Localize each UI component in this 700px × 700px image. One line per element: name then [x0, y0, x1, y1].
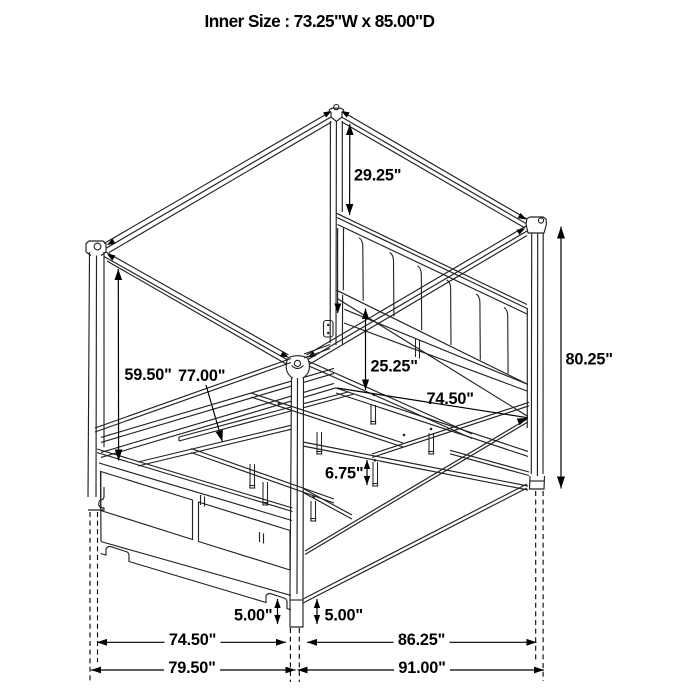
svg-text:Inner Size : 73.25"W x 85.00"D: Inner Size : 73.25"W x 85.00"D	[204, 11, 434, 31]
svg-text:29.25": 29.25"	[354, 167, 401, 185]
svg-text:6.75": 6.75"	[325, 465, 363, 483]
svg-text:5.00": 5.00"	[325, 607, 363, 625]
svg-text:80.25": 80.25"	[566, 351, 613, 369]
svg-text:79.50": 79.50"	[168, 659, 215, 677]
svg-text:91.00": 91.00"	[398, 659, 445, 677]
svg-text:59.50": 59.50"	[124, 366, 171, 384]
svg-text:77.00": 77.00"	[178, 367, 225, 385]
svg-text:74.50": 74.50"	[169, 631, 216, 649]
svg-text:25.25": 25.25"	[371, 358, 418, 376]
svg-text:74.50": 74.50"	[427, 390, 474, 408]
svg-text:86.25": 86.25"	[398, 631, 445, 649]
svg-text:5.00": 5.00"	[234, 607, 272, 625]
